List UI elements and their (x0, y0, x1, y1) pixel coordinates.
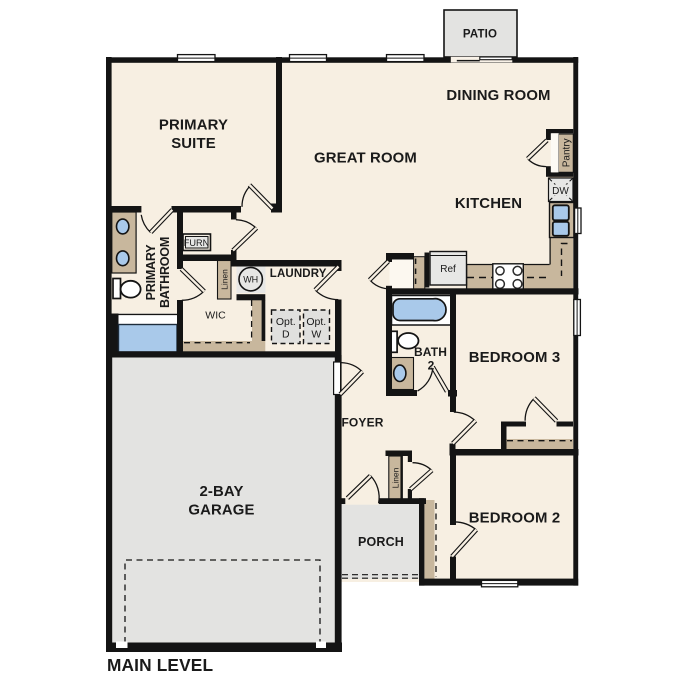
svg-text:W: W (311, 329, 321, 341)
svg-text:KITCHEN: KITCHEN (455, 196, 522, 212)
svg-text:FURN: FURN (184, 238, 210, 248)
svg-text:Opt.: Opt. (276, 316, 296, 328)
svg-text:Opt.: Opt. (306, 316, 326, 328)
svg-text:PORCH: PORCH (358, 535, 404, 549)
svg-text:2-BAY: 2-BAY (199, 484, 243, 500)
svg-text:LAUNDRY: LAUNDRY (270, 268, 327, 280)
svg-text:SUITE: SUITE (171, 136, 216, 152)
svg-text:WH: WH (243, 275, 258, 285)
svg-text:Linen: Linen (220, 269, 230, 290)
svg-text:DINING ROOM: DINING ROOM (446, 88, 550, 104)
svg-text:DW: DW (552, 186, 569, 197)
svg-text:Linen: Linen (390, 467, 400, 488)
svg-text:WIC: WIC (205, 310, 226, 322)
svg-text:BEDROOM 2: BEDROOM 2 (469, 511, 561, 527)
svg-text:GARAGE: GARAGE (188, 503, 254, 519)
svg-text:FOYER: FOYER (341, 416, 383, 430)
svg-text:BEDROOM 3: BEDROOM 3 (469, 350, 561, 366)
svg-text:BATHROOM: BATHROOM (158, 237, 172, 308)
svg-text:PATIO: PATIO (463, 29, 497, 41)
svg-text:PRIMARY: PRIMARY (159, 118, 228, 134)
svg-text:BATH: BATH (414, 345, 447, 359)
svg-text:MAIN LEVEL: MAIN LEVEL (107, 655, 213, 675)
svg-text:GREAT ROOM: GREAT ROOM (314, 151, 417, 167)
svg-text:D: D (282, 329, 290, 341)
svg-text:Ref: Ref (440, 264, 456, 275)
svg-text:PRIMARY: PRIMARY (144, 244, 158, 301)
svg-text:Pantry: Pantry (561, 138, 572, 167)
svg-text:2: 2 (428, 359, 435, 373)
